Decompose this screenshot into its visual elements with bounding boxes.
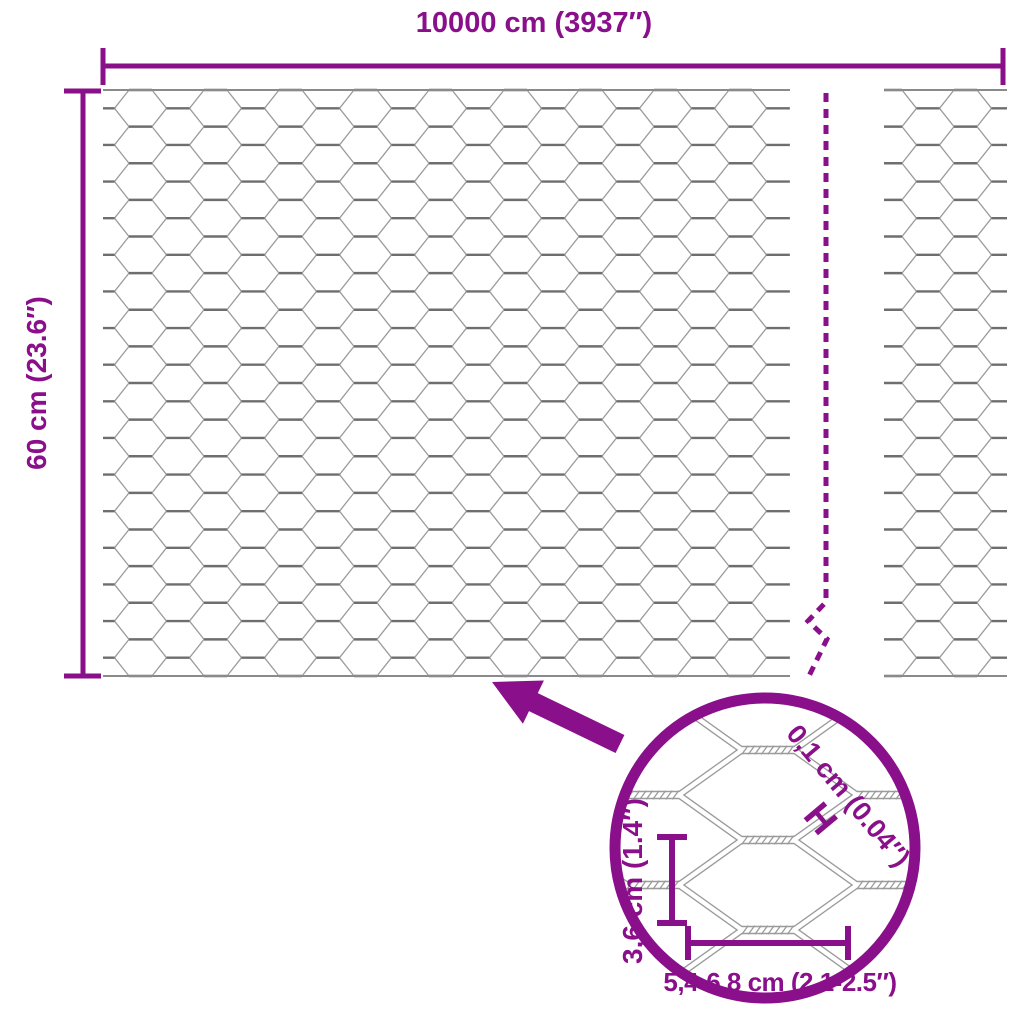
roll-height-label: 60 cm (23.6″) xyxy=(23,296,51,470)
diagram-canvas xyxy=(0,0,1024,1024)
panel-break-line xyxy=(808,93,827,676)
mesh-height-label: 3,6 cm (1.4″) xyxy=(619,798,647,964)
wire-mesh-dimension-diagram: 10000 cm (3937″) 60 cm (23.6″) 0,1 cm (0… xyxy=(0,0,1024,1024)
mesh-panel-right xyxy=(715,90,1024,676)
mesh-panel-main xyxy=(0,90,954,676)
roll-length-dimension-line xyxy=(103,48,1003,85)
roll-height-dimension-line xyxy=(64,91,101,676)
roll-length-label: 10000 cm (3937″) xyxy=(416,9,652,38)
mesh-width-label: 5,4-6,8 cm (2.1-2.5″) xyxy=(663,969,896,995)
magnifier-arrow-icon xyxy=(492,681,624,754)
